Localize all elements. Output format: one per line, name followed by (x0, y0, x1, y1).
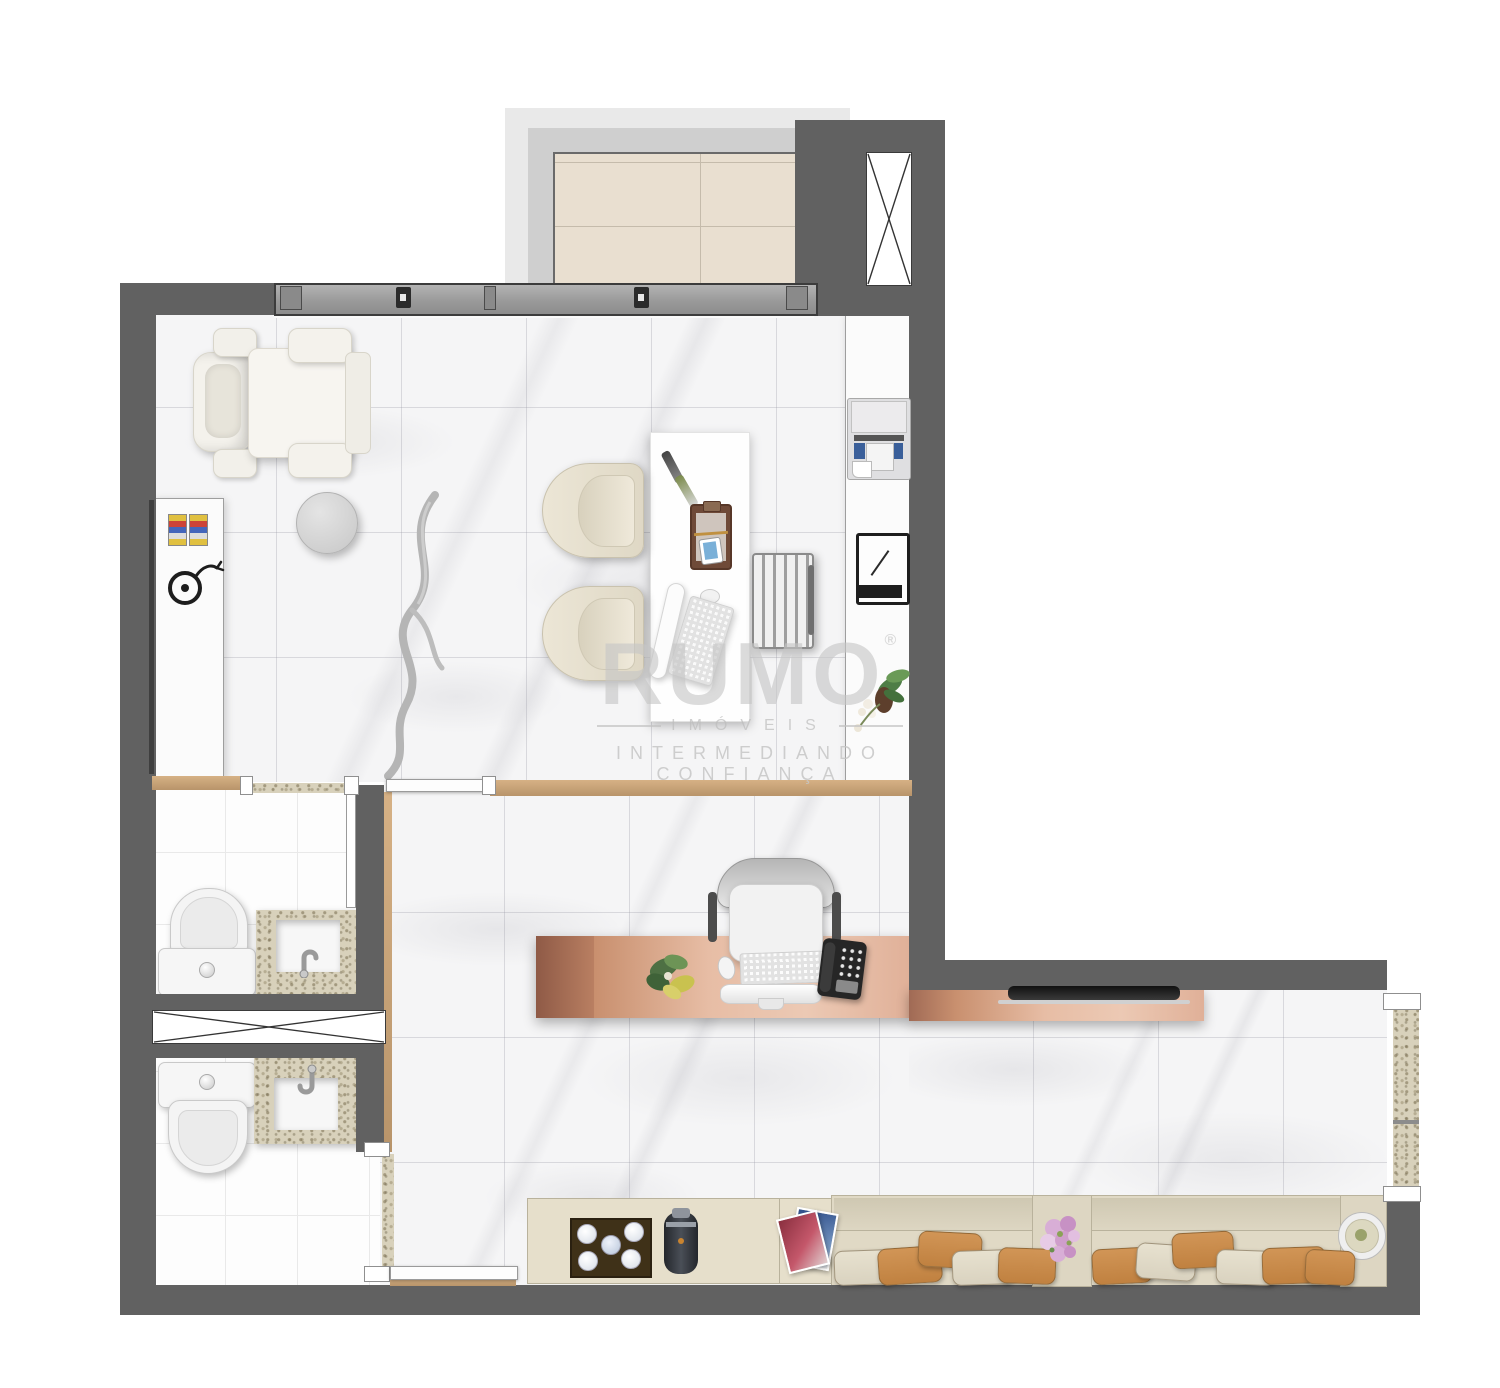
bath2-door-jamb-bottom (364, 1266, 390, 1282)
duct-wall-top (120, 994, 384, 1010)
exam-chair-end-panel (345, 352, 371, 454)
bath1-door-jamb-left (240, 776, 253, 795)
reception-desk-end-panel (536, 936, 594, 1018)
consult-door-jamb (482, 776, 496, 795)
right-window-wall-lower (1385, 1198, 1420, 1315)
toilet-flush-button (199, 962, 215, 978)
thermos (664, 1212, 698, 1274)
medicine-box-1 (168, 514, 187, 546)
bath2-door-leaf (390, 1266, 518, 1280)
window-handle-right (634, 287, 649, 308)
consult-door-leaf (386, 779, 488, 792)
bath1-toilet (158, 888, 254, 996)
bathroom-duct (152, 1010, 386, 1044)
return-monitor-stand (998, 1000, 1190, 1004)
toilet-seat (180, 897, 238, 949)
armchair-cushion (578, 598, 635, 670)
signature-tablet (856, 533, 910, 605)
exam-chair (193, 328, 371, 476)
exam-chair-back-cushion (205, 364, 241, 438)
exam-chair-arm-bottom (288, 443, 352, 478)
guest-armchair-1 (542, 463, 644, 558)
east-window-sill (1393, 1008, 1419, 1186)
phone-handset (819, 942, 836, 993)
serving-tray (570, 1218, 652, 1278)
bath1-sliding-door-track (251, 783, 345, 793)
bath1-faucet (296, 944, 322, 978)
window-end-cap-right (786, 286, 808, 310)
medicine-box-2 (189, 514, 208, 546)
guest-armchair-2 (542, 586, 644, 681)
shaft-x-icon (867, 153, 911, 285)
bath1-partition (346, 794, 356, 908)
south-wall (120, 1285, 1420, 1315)
bath2-door-jamb-top (364, 1142, 390, 1157)
doctor-chair (752, 553, 814, 649)
magazines (780, 1206, 836, 1276)
floor-plan: RUMO® IMÓVEIS INTERMEDIANDO CONFIANÇA (0, 0, 1500, 1388)
bath1-door-jamb-right (344, 776, 359, 795)
bath2-sliding-door-track (382, 1154, 394, 1268)
toilet-flush-button (199, 1074, 215, 1090)
kitchenette-counter (527, 1198, 781, 1284)
left-wall (120, 283, 156, 1315)
balcony-shaft (866, 152, 912, 286)
reception-chair-arm-left (708, 892, 717, 942)
clipboard-clip (703, 501, 721, 512)
bath2-faucet (294, 1064, 320, 1100)
exam-chair-seat (248, 348, 352, 458)
bathroom-east-wall-wood-face (384, 792, 392, 1152)
reception-plant (638, 946, 704, 1006)
east-window-mid-rail (1393, 1120, 1419, 1124)
shaft-x-icon (153, 1011, 385, 1043)
bench-backrest (834, 1198, 1382, 1231)
bath2-toilet (158, 1062, 254, 1172)
balcony-sliding-window (274, 283, 818, 316)
orchid-plant (850, 660, 914, 734)
clipboard (690, 504, 732, 570)
duct-wall-bottom (120, 1042, 384, 1058)
smartphone (698, 537, 723, 566)
east-window-frame-top (1383, 993, 1421, 1010)
bench-pillow (1304, 1249, 1356, 1287)
window-mullion (484, 286, 496, 310)
branch-decor (330, 480, 530, 780)
reception-keyboard (739, 951, 824, 986)
doctor-chair-arm (808, 565, 814, 635)
window-end-cap-left (280, 286, 302, 310)
right-wall-consultation (909, 283, 945, 962)
phone-screen (835, 979, 858, 994)
stethoscope-icon (163, 548, 225, 614)
consult-south-wood-left (152, 776, 244, 790)
med-counter (152, 498, 224, 778)
window-handle-left (396, 287, 411, 308)
east-window-frame-bottom (1383, 1186, 1421, 1202)
printer (847, 398, 911, 480)
armchair-cushion (578, 475, 635, 547)
bathroom-east-wall (356, 785, 384, 1152)
return-monitor (1008, 986, 1180, 1000)
phone-keypad (837, 946, 863, 979)
divider-flowers (1034, 1210, 1088, 1274)
consult-south-wood-right (490, 780, 912, 796)
exam-chair-arm-top (288, 328, 352, 363)
desk-phone (817, 938, 868, 1001)
reception-monitor-stem (758, 998, 784, 1010)
med-counter-edge (149, 500, 154, 774)
reception-chair-arm-right (832, 892, 841, 942)
